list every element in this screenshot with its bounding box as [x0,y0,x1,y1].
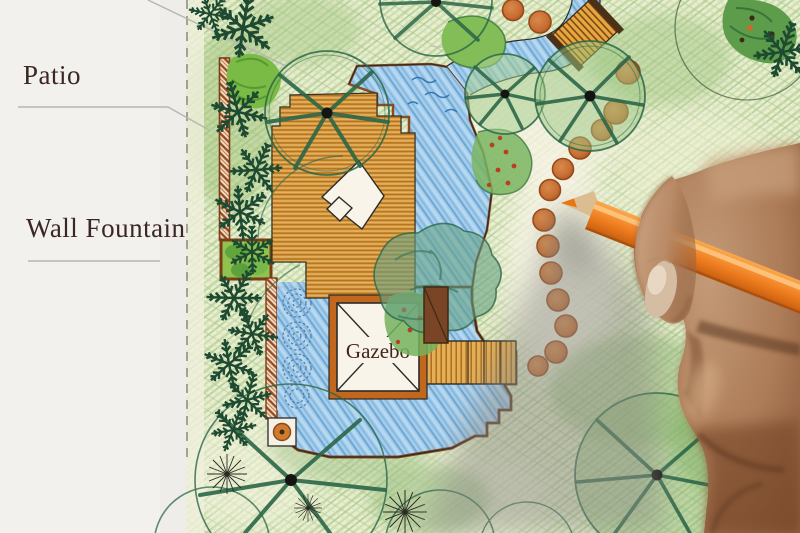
svg-text:Wall Fountain: Wall Fountain [26,213,186,243]
svg-text:Patio: Patio [23,60,81,90]
